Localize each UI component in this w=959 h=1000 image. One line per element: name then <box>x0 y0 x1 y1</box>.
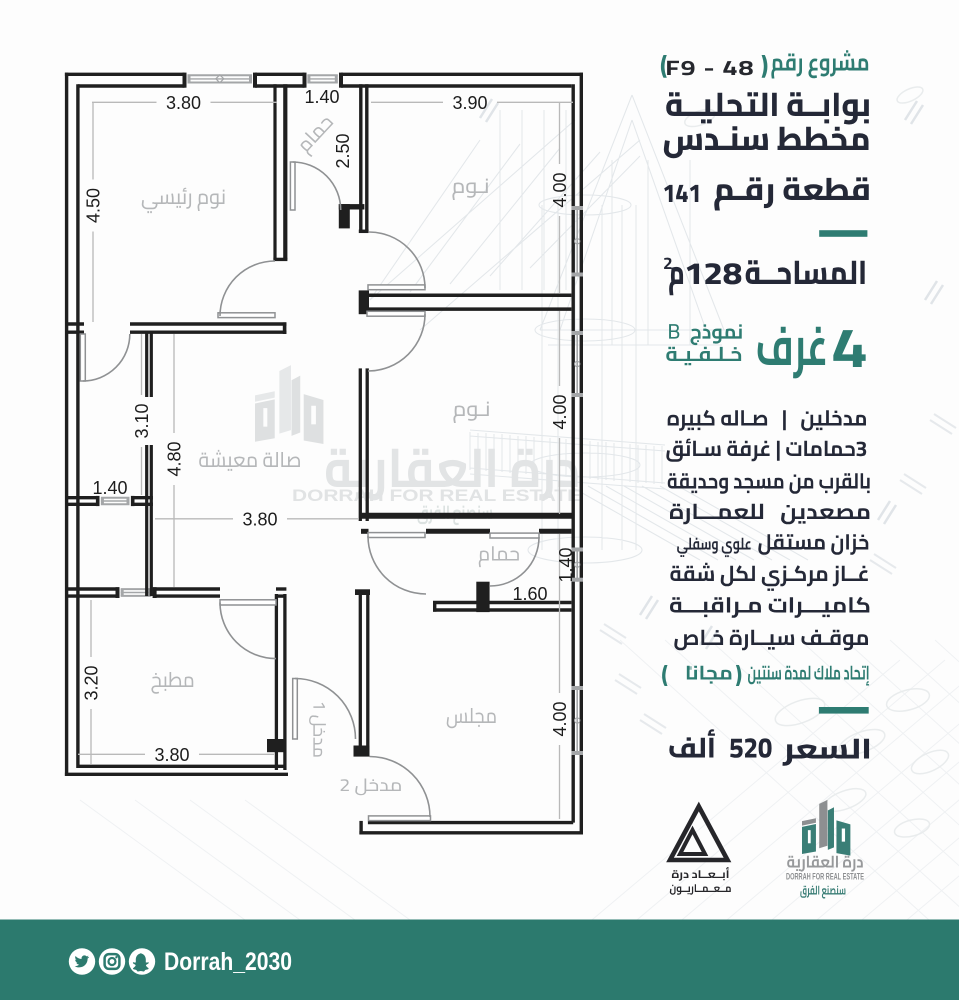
svg-text:3.10: 3.10 <box>132 403 152 438</box>
svg-text:3.20: 3.20 <box>82 665 102 700</box>
svg-text:4.00: 4.00 <box>550 701 570 736</box>
svg-text:2.50: 2.50 <box>333 133 353 168</box>
svg-text:3.80: 3.80 <box>166 93 201 113</box>
svg-text:1.40: 1.40 <box>92 478 127 498</box>
svg-text:4.80: 4.80 <box>165 441 185 476</box>
svg-text:1.60: 1.60 <box>512 584 547 604</box>
svg-text:1.40: 1.40 <box>556 547 576 582</box>
svg-text:Dorrah_2030: Dorrah_2030 <box>164 948 292 976</box>
svg-text:3.80: 3.80 <box>154 745 189 765</box>
svg-text:3.90: 3.90 <box>452 93 487 113</box>
svg-text:DORRAH FOR REAL ESTATE: DORRAH FOR REAL ESTATE <box>786 872 864 883</box>
svg-text:4.00: 4.00 <box>550 394 570 429</box>
svg-text:1.40: 1.40 <box>304 87 339 107</box>
svg-text:3.80: 3.80 <box>242 509 277 529</box>
svg-text:4.50: 4.50 <box>84 188 104 223</box>
svg-text:4.00: 4.00 <box>550 172 570 207</box>
svg-text:DORRAH FOR REAL ESTATE: DORRAH FOR REAL ESTATE <box>292 486 581 505</box>
